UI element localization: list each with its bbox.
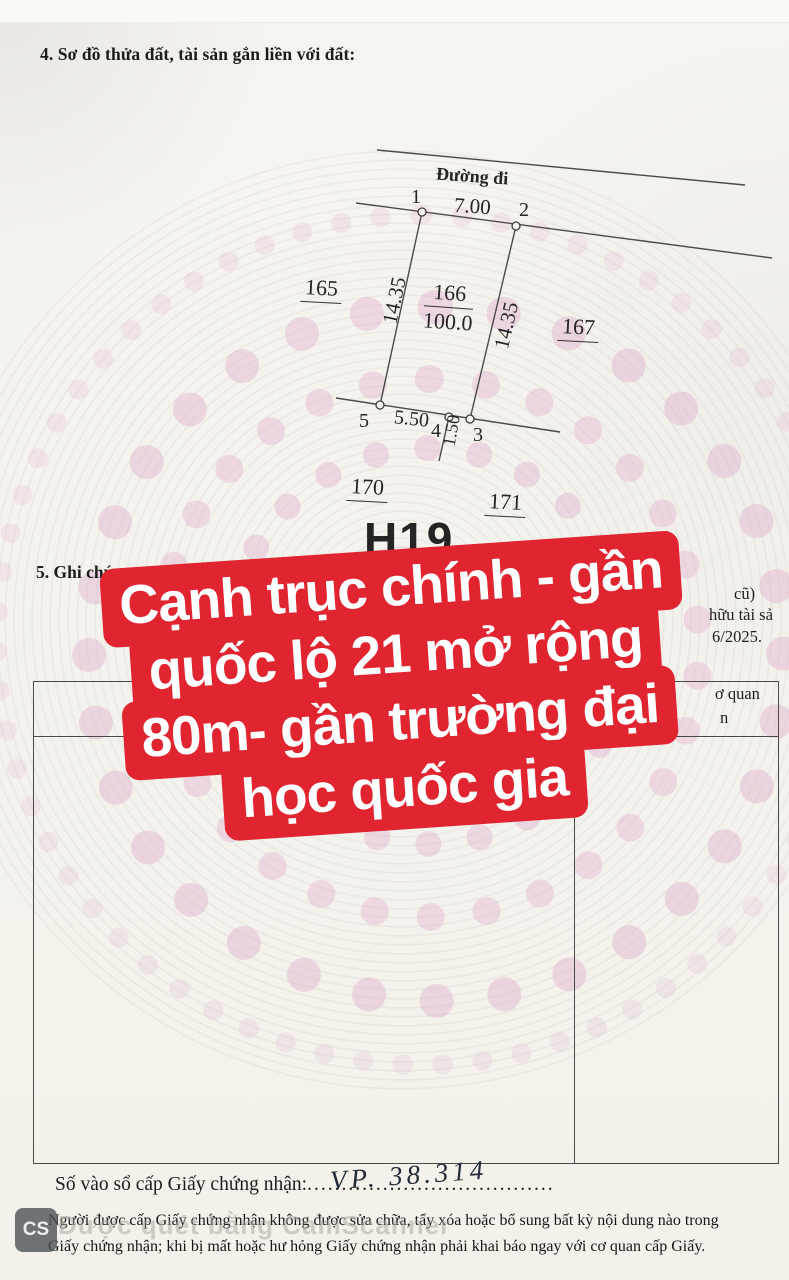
adjacent-parcel-170: 170 <box>346 473 388 503</box>
boundary-point-2 <box>512 222 520 230</box>
boundary-point-5 <box>376 401 384 409</box>
registry-label: Số vào sổ cấp Giấy chứng nhận: <box>55 1174 307 1195</box>
boundary-point-3 <box>466 415 474 423</box>
edge-length-top: 7.00 <box>453 193 491 221</box>
subject-parcel-166: 166 100.0 <box>422 278 475 336</box>
boundary-point-1 <box>418 208 426 216</box>
adjacent-parcel-167: 167 <box>557 313 599 343</box>
edge-length-bottom: 5.50 <box>393 406 430 433</box>
adjacent-parcel-171: 171 <box>484 488 526 518</box>
point-label-1: 1 <box>411 186 421 209</box>
point-label-3: 3 <box>473 424 483 447</box>
point-label-5: 5 <box>359 410 369 433</box>
camscanner-watermark-text: Được quét bằng CamScanner <box>58 1210 451 1241</box>
ad-overlay-banner: Cạnh trục chính - gần quốc lộ 21 mở rộng… <box>34 538 763 854</box>
land-certificate-page: 4. Sơ đồ thửa đất, tài sản gắn liền với … <box>0 0 789 1280</box>
camscanner-logo: CS <box>15 1208 57 1252</box>
parcel-area: 100.0 <box>422 307 473 336</box>
adjacent-parcel-165: 165 <box>300 274 342 304</box>
parcel-number: 166 <box>424 278 475 309</box>
point-label-2: 2 <box>519 199 529 222</box>
